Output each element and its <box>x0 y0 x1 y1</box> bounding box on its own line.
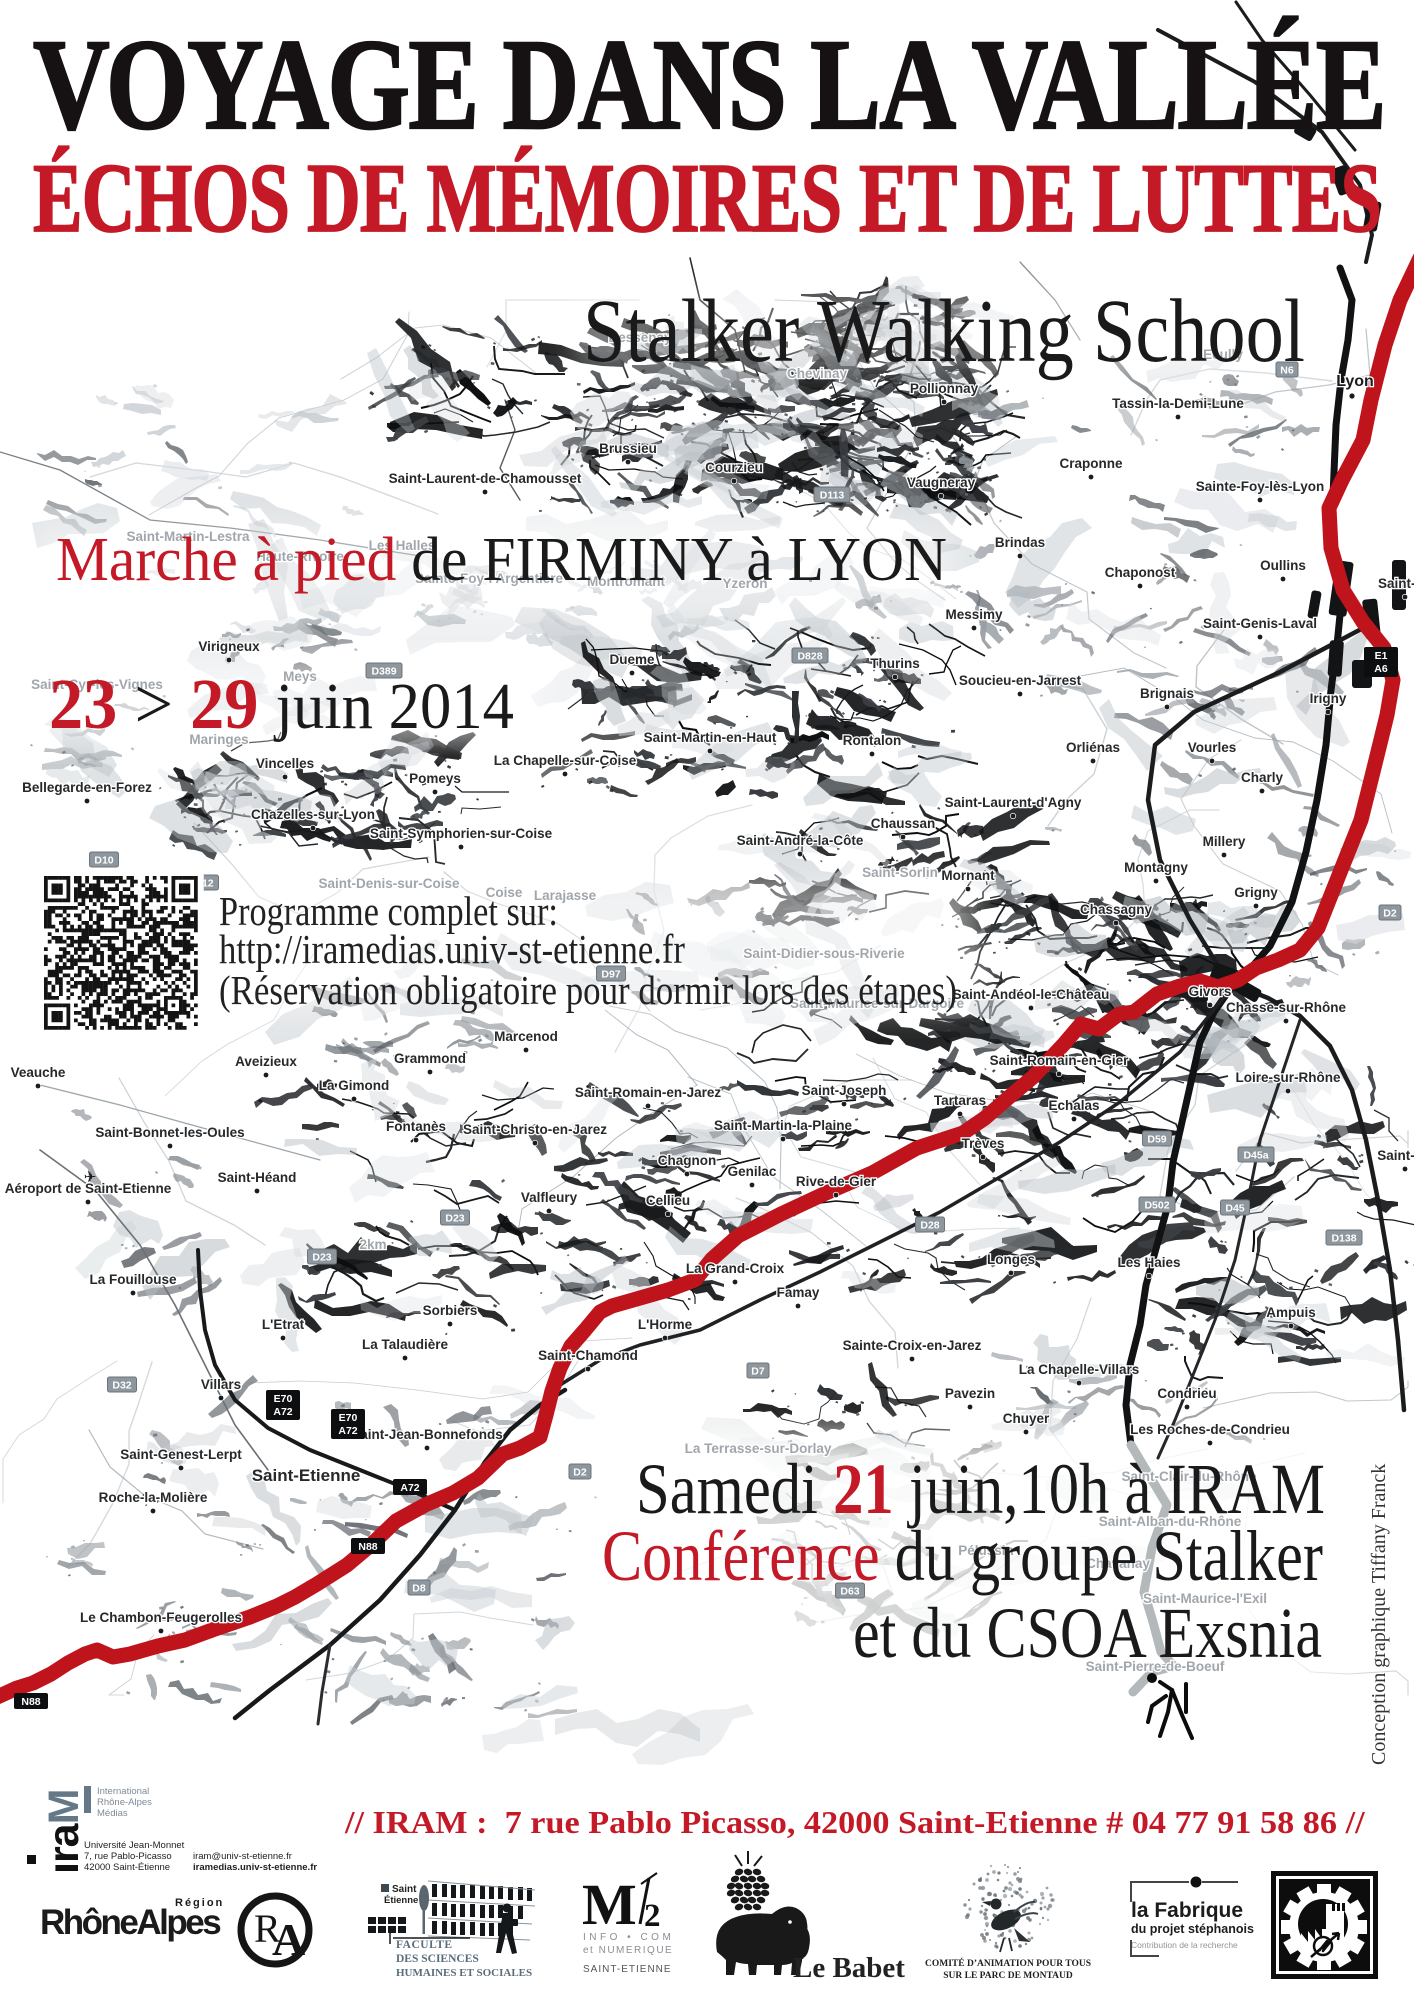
svg-text:Pollionnay: Pollionnay <box>910 381 979 396</box>
svg-text:Saint-André-la-Côte: Saint-André-la-Côte <box>737 833 864 848</box>
svg-text:Brignais: Brignais <box>1140 686 1194 701</box>
svg-text:Saint-Didier-sous-Riverie: Saint-Didier-sous-Riverie <box>743 946 905 961</box>
svg-text:Valfleury: Valfleury <box>521 1190 578 1205</box>
svg-text:et NUMERIQUE: et NUMERIQUE <box>583 1945 673 1956</box>
svg-text:D828: D828 <box>797 651 822 663</box>
svg-text:Saint-Héand: Saint-Héand <box>218 1170 297 1185</box>
svg-text:E1: E1 <box>1375 650 1388 662</box>
svg-text:Pavezin: Pavezin <box>945 1386 995 1401</box>
svg-text:Ampuis: Ampuis <box>1266 1305 1316 1320</box>
svg-text:Millery: Millery <box>1203 834 1246 849</box>
svg-text:Contribution de la recherche: Contribution de la recherche <box>1131 1940 1238 1950</box>
svg-text:Chassagny: Chassagny <box>1080 902 1153 917</box>
svg-text:Pomeys: Pomeys <box>409 771 461 786</box>
svg-text:DES SCIENCES: DES SCIENCES <box>396 1953 479 1965</box>
svg-text:la Fabrique: la Fabrique <box>1131 1899 1243 1922</box>
svg-text:Région: Région <box>175 1897 224 1909</box>
svg-text:La Talaudière: La Talaudière <box>362 1337 449 1352</box>
svg-text:Dueme: Dueme <box>609 652 655 667</box>
svg-text:Chaussan: Chaussan <box>871 816 936 831</box>
svg-text:Saint-Genis-Laval: Saint-Genis-Laval <box>1203 616 1317 631</box>
svg-text:A72: A72 <box>273 1406 292 1418</box>
svg-text:D32: D32 <box>112 1380 131 1392</box>
svg-text:Saint-Laurent-de-Chamousset: Saint-Laurent-de-Chamousset <box>389 471 582 486</box>
svg-text:N88: N88 <box>358 1541 377 1553</box>
svg-text:Orliénas: Orliénas <box>1066 740 1120 755</box>
svg-text:D59: D59 <box>1147 1134 1166 1146</box>
svg-text:Saint-Christo-en-Jarez: Saint-Christo-en-Jarez <box>463 1122 607 1137</box>
svg-text:Loire-sur-Rhône: Loire-sur-Rhône <box>1235 1070 1340 1085</box>
svg-text:Saint-Etienne: Saint-Etienne <box>252 1466 361 1485</box>
svg-text:Givors: Givors <box>1189 984 1232 999</box>
svg-text:2: 2 <box>644 1898 661 1934</box>
svg-text:Soucieu-en-Jarrest: Soucieu-en-Jarrest <box>959 673 1082 688</box>
svg-text:La Chapelle-sur-Coise: La Chapelle-sur-Coise <box>494 753 637 768</box>
svg-text:FACULTE: FACULTE <box>396 1939 453 1951</box>
svg-text:Saint-Bonnet-les-Oules: Saint-Bonnet-les-Oules <box>95 1125 244 1140</box>
svg-text:Charly: Charly <box>1241 770 1284 785</box>
svg-text:Marcenod: Marcenod <box>494 1029 558 1044</box>
svg-text:Genilac: Genilac <box>728 1164 777 1179</box>
svg-text:D45a: D45a <box>1243 1150 1268 1162</box>
svg-text:Cellieu: Cellieu <box>646 1193 690 1208</box>
svg-text:Saint-Chamond: Saint-Chamond <box>538 1348 638 1363</box>
svg-text:E70: E70 <box>339 1412 358 1424</box>
svg-text:Chagnon: Chagnon <box>658 1153 717 1168</box>
svg-text:Echalas: Echalas <box>1048 1098 1099 1113</box>
svg-text:Irigny: Irigny <box>1310 691 1347 706</box>
svg-text:Les Roches-de-Condrieu: Les Roches-de-Condrieu <box>1130 1422 1290 1437</box>
svg-text:Veauche: Veauche <box>11 1065 66 1080</box>
svg-text:Étienne: Étienne <box>384 1895 418 1906</box>
svg-text:La Gimond: La Gimond <box>319 1078 390 1093</box>
svg-text:Chaponost: Chaponost <box>1105 565 1176 580</box>
svg-text:D138: D138 <box>1331 1233 1356 1245</box>
svg-text:Grammond: Grammond <box>394 1051 466 1066</box>
svg-text:Saint-Fo: Saint-Fo <box>1378 576 1414 591</box>
svg-text:A72: A72 <box>400 1482 419 1494</box>
svg-text:Famay: Famay <box>777 1285 820 1300</box>
svg-text:D2: D2 <box>1383 908 1397 920</box>
svg-text:La Fouillouse: La Fouillouse <box>89 1272 176 1287</box>
svg-text:Trèves: Trèves <box>962 1136 1005 1151</box>
svg-text:Sainte-Foy-lès-Lyon: Sainte-Foy-lès-Lyon <box>1196 479 1325 494</box>
svg-text:D113: D113 <box>820 490 845 502</box>
svg-text:Saint-Sorlin: Saint-Sorlin <box>862 865 938 880</box>
svg-text:Courzieu: Courzieu <box>705 460 763 475</box>
svg-text:du projet stéphanois: du projet stéphanois <box>1131 1922 1254 1936</box>
svg-text:COMITÉ D’ANIMATION POUR TOUS: COMITÉ D’ANIMATION POUR TOUS <box>925 1957 1091 1969</box>
svg-text:Saint-Romain-en-Gier: Saint-Romain-en-Gier <box>990 1053 1130 1068</box>
svg-text:D10: D10 <box>94 855 113 867</box>
svg-text:L'Horme: L'Horme <box>638 1317 693 1332</box>
svg-text:Fontanès: Fontanès <box>386 1119 446 1134</box>
svg-text:Saint: Saint <box>392 1884 417 1895</box>
svg-text:Saint-Ro: Saint-Ro <box>1377 1148 1414 1163</box>
svg-text:Saint-Jean-Bonnefonds: Saint-Jean-Bonnefonds <box>351 1427 503 1442</box>
svg-text:INFO • COM: INFO • COM <box>583 1932 674 1943</box>
svg-text:Sorbiers: Sorbiers <box>423 1303 478 1318</box>
svg-text:Brussieu: Brussieu <box>599 441 657 456</box>
svg-text:Montagny: Montagny <box>1124 860 1188 875</box>
svg-text:Tartaras: Tartaras <box>934 1093 986 1108</box>
svg-text:D8: D8 <box>412 1583 426 1595</box>
svg-text:E70: E70 <box>274 1393 293 1405</box>
svg-text:Messimy: Messimy <box>945 607 1003 622</box>
svg-text:D7: D7 <box>751 1366 765 1378</box>
svg-text:✈: ✈ <box>84 1170 97 1186</box>
svg-text:SAINT-ETIENNE: SAINT-ETIENNE <box>583 1964 672 1975</box>
svg-text:Lyon: Lyon <box>1336 373 1374 390</box>
svg-text:D28: D28 <box>920 1220 939 1232</box>
svg-text:Sainte-Croix-en-Jarez: Sainte-Croix-en-Jarez <box>843 1338 982 1353</box>
svg-text:Saint-Martin-la-Plaine: Saint-Martin-la-Plaine <box>714 1118 853 1133</box>
svg-text:Mornant: Mornant <box>941 868 995 883</box>
svg-text:Vincelles: Vincelles <box>256 756 314 771</box>
svg-text:D23: D23 <box>445 1213 464 1225</box>
svg-text:Saint-Romain-en-Jarez: Saint-Romain-en-Jarez <box>575 1085 722 1100</box>
svg-text:Roche-la-Molière: Roche-la-Molière <box>99 1490 208 1505</box>
svg-text:M: M <box>582 1872 637 1937</box>
svg-text:Villars: Villars <box>201 1377 241 1392</box>
svg-text:Saint-Laurent-d'Agny: Saint-Laurent-d'Agny <box>945 795 1082 810</box>
svg-text:Craponne: Craponne <box>1059 456 1122 471</box>
svg-text:D45: D45 <box>1225 1203 1244 1215</box>
svg-text:Saint-Symphorien-sur-Coise: Saint-Symphorien-sur-Coise <box>370 826 553 841</box>
svg-text:La Grand-Croix: La Grand-Croix <box>686 1261 785 1276</box>
svg-text:A6: A6 <box>1374 663 1388 675</box>
svg-text:A: A <box>272 1914 305 1965</box>
svg-text:Le Babet: Le Babet <box>793 1952 905 1984</box>
svg-text:D502: D502 <box>1144 1200 1169 1212</box>
svg-text:Grigny: Grigny <box>1234 885 1278 900</box>
svg-text:Rontalon: Rontalon <box>843 733 902 748</box>
svg-text:Rive-de-Gier: Rive-de-Gier <box>796 1174 877 1189</box>
svg-text:Saint-Genest-Lerpt: Saint-Genest-Lerpt <box>120 1447 242 1462</box>
svg-text:Chasse-sur-Rhône: Chasse-sur-Rhône <box>1226 1000 1347 1015</box>
svg-text:2km: 2km <box>359 1237 386 1252</box>
svg-text:Brindas: Brindas <box>995 535 1045 550</box>
svg-text:Saint-Joseph: Saint-Joseph <box>802 1083 887 1098</box>
svg-text:Chuyer: Chuyer <box>1003 1411 1050 1426</box>
svg-text:Tassin-la-Demi-Lune: Tassin-la-Demi-Lune <box>1112 396 1244 411</box>
svg-text:SUR LE PARC DE MONTAUD: SUR LE PARC DE MONTAUD <box>943 1971 1073 1981</box>
svg-text:Longes: Longes <box>987 1252 1035 1267</box>
svg-text:Oullins: Oullins <box>1260 558 1306 573</box>
svg-text:HUMAINES ET SOCIALES: HUMAINES ET SOCIALES <box>396 1967 532 1979</box>
svg-text:Le Chambon-Feugerolles: Le Chambon-Feugerolles <box>80 1610 242 1625</box>
svg-text:A72: A72 <box>338 1425 357 1437</box>
svg-text:D23: D23 <box>312 1252 331 1264</box>
svg-text:Vaugneray: Vaugneray <box>907 475 976 490</box>
svg-text:Thurins: Thurins <box>870 656 920 671</box>
svg-text:Condrieu: Condrieu <box>1157 1386 1216 1401</box>
svg-text:Bellegarde-en-Forez: Bellegarde-en-Forez <box>22 780 152 795</box>
svg-text:Aveizieux: Aveizieux <box>235 1054 297 1069</box>
svg-text:Saint-Martin-en-Haut: Saint-Martin-en-Haut <box>644 730 777 745</box>
svg-text:Vourles: Vourles <box>1188 740 1237 755</box>
svg-text:D2: D2 <box>573 1467 587 1479</box>
svg-text:Saint-Andéol-le-Château: Saint-Andéol-le-Château <box>953 987 1110 1002</box>
svg-text:Virigneux: Virigneux <box>198 639 260 654</box>
svg-text:Chazelles-sur-Lyon: Chazelles-sur-Lyon <box>251 807 375 822</box>
svg-text:La Chapelle-Villars: La Chapelle-Villars <box>1019 1362 1140 1377</box>
svg-text:Les Haies: Les Haies <box>1117 1255 1180 1270</box>
svg-text:N88: N88 <box>21 1696 40 1708</box>
svg-text:L'Etrat: L'Etrat <box>262 1317 305 1332</box>
